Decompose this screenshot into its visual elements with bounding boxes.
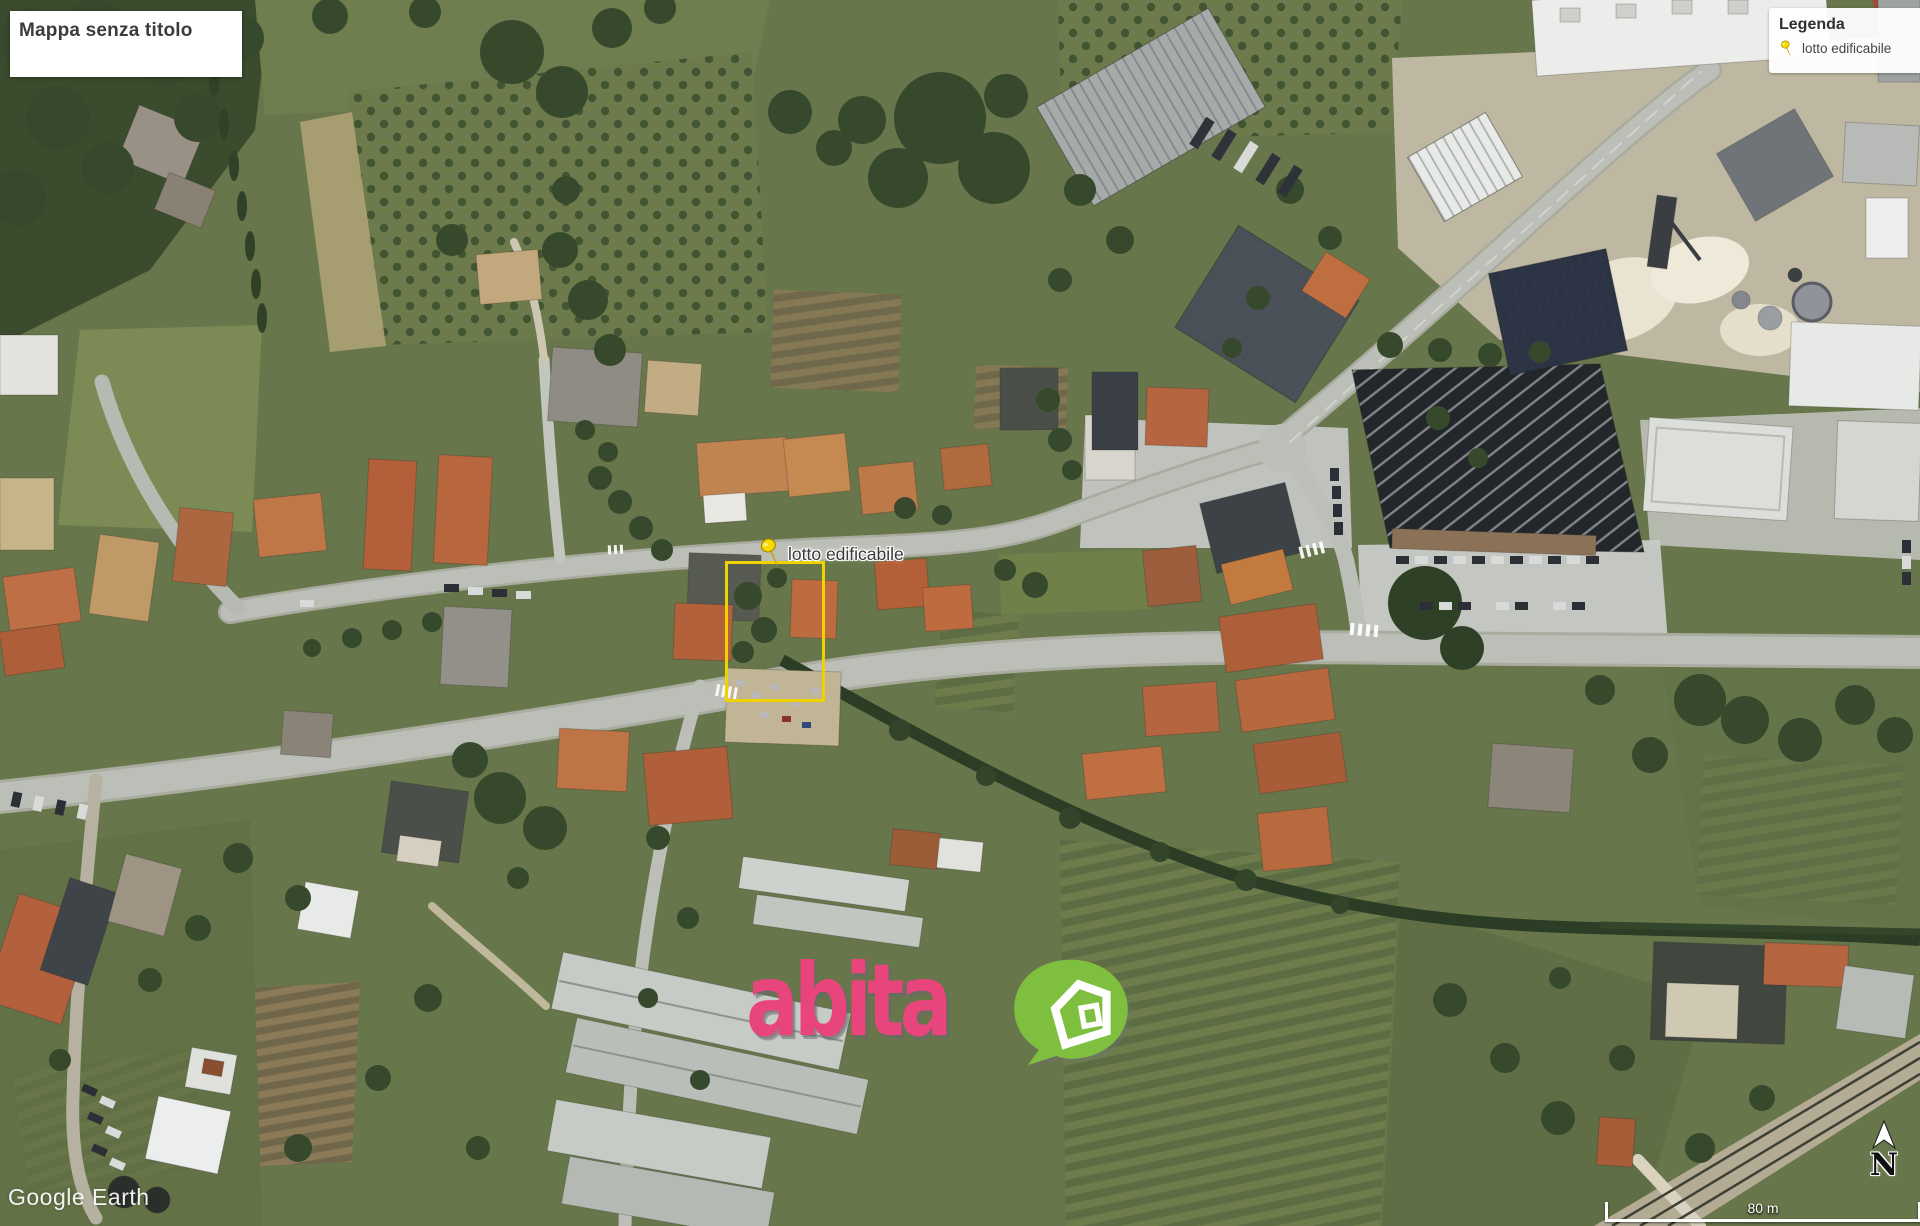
- placemark-label: lotto edificabile: [788, 544, 904, 565]
- legend-title: Legenda: [1779, 16, 1920, 34]
- north-label: N: [1866, 1150, 1902, 1180]
- abita-logo-text: abita: [746, 942, 948, 1060]
- map-title: Mappa senza titolo: [19, 20, 193, 41]
- plot-outline[interactable]: [725, 561, 825, 702]
- scale-bar: 80 m: [1605, 1202, 1920, 1222]
- legend-panel: Legenda lotto edificabile: [1769, 8, 1920, 73]
- google-earth-map-view: Mappa senza titolo Legenda lotto edifica…: [0, 0, 1920, 1226]
- scale-label: 80 m: [1608, 1200, 1918, 1216]
- north-compass: N: [1866, 1120, 1902, 1180]
- abita-logo: abita: [746, 950, 1166, 1070]
- north-arrow-icon: [1871, 1120, 1897, 1150]
- placemark-pushpin-icon[interactable]: [757, 536, 784, 569]
- legend-item-lotto-edificabile: lotto edificabile: [1779, 39, 1920, 58]
- legend-item-label: lotto edificabile: [1802, 41, 1891, 56]
- house-bubble-icon: [1005, 957, 1137, 1067]
- pushpin-icon: [1779, 39, 1794, 58]
- map-title-box: Mappa senza titolo: [10, 11, 242, 77]
- google-earth-watermark: Google Earth: [8, 1184, 150, 1211]
